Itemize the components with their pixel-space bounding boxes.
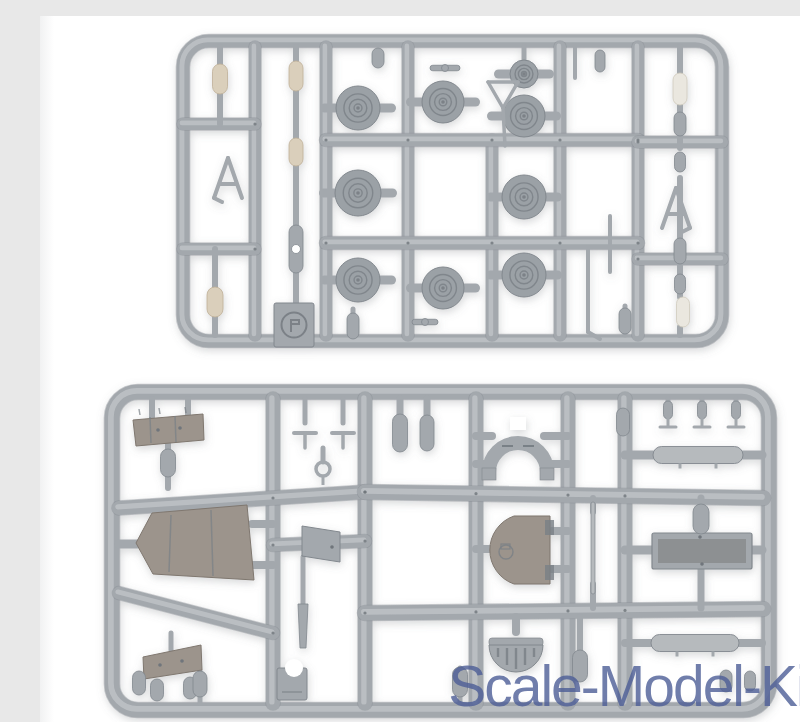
watermark-text: Scale-Model-Kits — [448, 653, 800, 719]
part-poly — [302, 526, 340, 562]
part-tan — [213, 64, 228, 94]
part-capsule — [151, 679, 164, 701]
part-capsule — [617, 408, 630, 436]
part-ivory — [677, 297, 690, 327]
part-tan — [207, 287, 223, 317]
part-capsule — [193, 671, 207, 697]
part-prop — [430, 65, 460, 72]
part-link — [289, 225, 303, 273]
part-tpart — [294, 433, 316, 448]
part-tray — [652, 533, 752, 569]
part-capsule — [393, 414, 408, 452]
part-poly — [136, 505, 254, 580]
part-tpart — [332, 433, 354, 448]
part-upart — [482, 417, 554, 480]
part-capsule — [675, 152, 686, 172]
part-goblet — [694, 401, 710, 427]
part-aframe — [662, 188, 690, 232]
part-sqnotch — [277, 659, 307, 700]
part-capsule — [674, 112, 686, 136]
part-wheel — [494, 60, 554, 88]
part-stamp — [274, 303, 314, 347]
part-poly — [133, 407, 204, 446]
part-blade — [591, 502, 595, 594]
part-capsule — [347, 313, 359, 339]
sprue-svg — [40, 16, 800, 722]
part-capsule — [693, 504, 709, 534]
part-capsule — [133, 671, 146, 695]
part-capsule — [674, 238, 686, 264]
part-tan — [289, 138, 303, 166]
part-ivory — [673, 73, 687, 105]
part-capsule — [675, 274, 686, 294]
part-prop — [412, 319, 438, 326]
part-capsule — [619, 308, 631, 334]
part-tan — [289, 61, 303, 91]
product-photo: Scale-Model-Kits — [40, 16, 800, 722]
part-wheel — [406, 81, 480, 123]
top-sprue — [182, 40, 722, 347]
part-capsule — [161, 449, 176, 477]
part-capsule — [420, 415, 434, 451]
part-capsule — [595, 50, 605, 72]
part-aframe — [214, 158, 242, 202]
part-wheel — [406, 267, 480, 309]
part-strut — [298, 604, 308, 648]
part-capsule — [372, 48, 384, 68]
part-dpart — [490, 516, 554, 584]
part-tank — [653, 447, 743, 469]
part-goblet — [728, 401, 744, 427]
part-goblet — [660, 401, 676, 427]
part-ring — [316, 462, 330, 485]
